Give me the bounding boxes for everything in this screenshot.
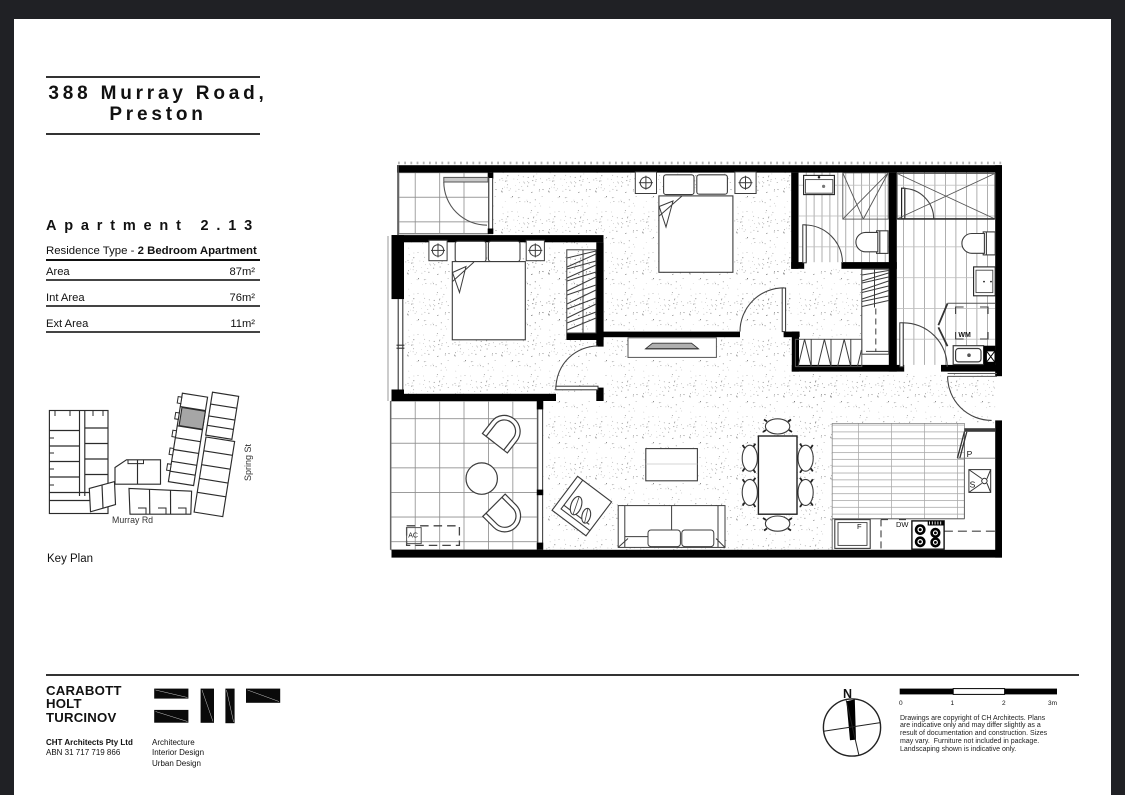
svg-text:P: P: [967, 449, 973, 459]
svg-text:WM: WM: [958, 332, 971, 339]
svg-text:F: F: [857, 522, 862, 531]
svg-text:S: S: [970, 479, 976, 489]
svg-text:DW: DW: [896, 520, 909, 529]
svg-text:AC: AC: [408, 533, 418, 540]
